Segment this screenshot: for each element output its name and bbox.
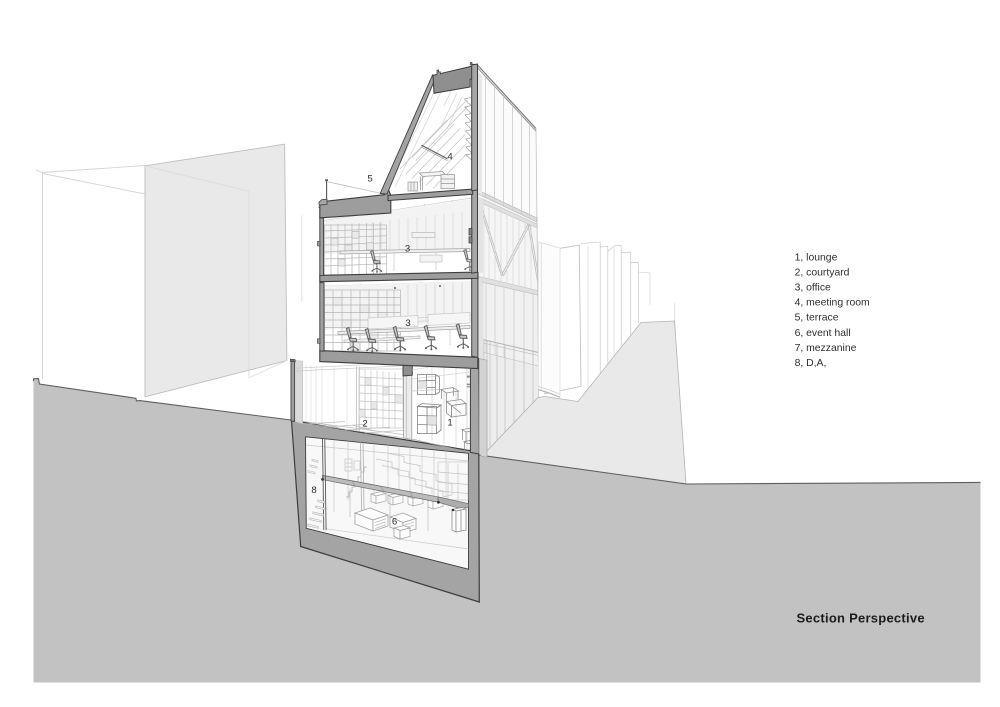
svg-text:3, office: 3, office: [795, 283, 831, 294]
svg-text:5: 5: [367, 174, 372, 185]
svg-text:3: 3: [405, 243, 410, 254]
svg-text:6, event hall: 6, event hall: [795, 328, 851, 339]
svg-text:1: 1: [447, 417, 452, 428]
svg-text:8: 8: [311, 485, 316, 496]
svg-text:2, courtyard: 2, courtyard: [795, 267, 850, 278]
svg-text:7, mezzanine: 7, mezzanine: [795, 343, 857, 354]
svg-text:3: 3: [405, 318, 410, 329]
svg-text:4: 4: [447, 151, 453, 162]
svg-text:1, lounge: 1, lounge: [795, 252, 838, 263]
svg-text:5, terrace: 5, terrace: [795, 313, 839, 324]
svg-text:Section Perspective: Section Perspective: [797, 610, 925, 625]
svg-text:4, meeting room: 4, meeting room: [795, 298, 870, 309]
svg-text:6: 6: [392, 517, 397, 528]
svg-text:8, D,A,: 8, D,A,: [795, 358, 827, 369]
svg-text:2: 2: [362, 418, 367, 429]
